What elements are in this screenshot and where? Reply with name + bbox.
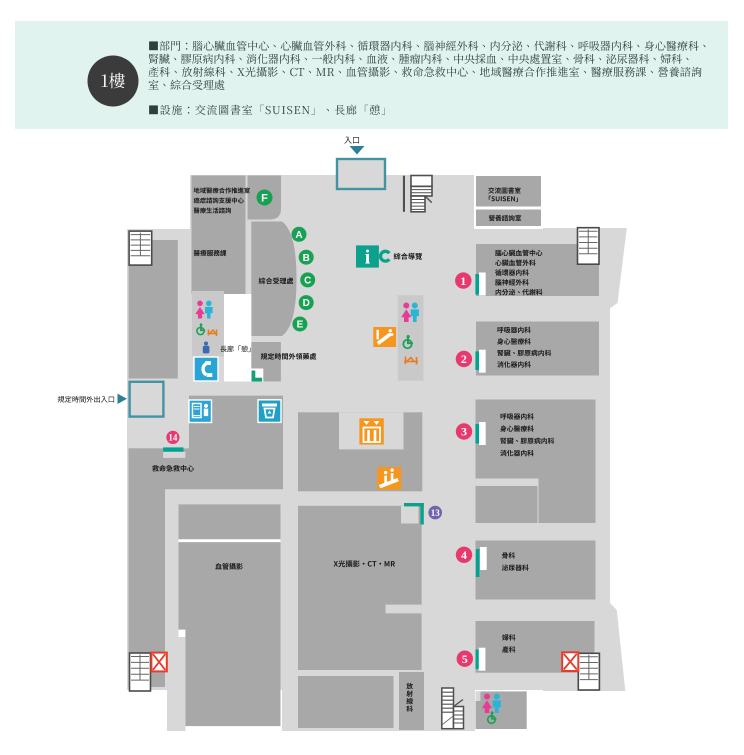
svg-text:4: 4 bbox=[461, 548, 467, 562]
svg-text:1: 1 bbox=[460, 274, 466, 288]
svg-text:F: F bbox=[261, 192, 268, 204]
svg-text:C: C bbox=[304, 276, 311, 287]
svg-text:2: 2 bbox=[461, 352, 467, 366]
svg-text:13: 13 bbox=[431, 508, 441, 518]
svg-text:D: D bbox=[303, 298, 310, 309]
svg-text:E: E bbox=[297, 320, 304, 331]
svg-text:B: B bbox=[303, 253, 310, 264]
svg-text:3: 3 bbox=[461, 425, 467, 439]
svg-text:A: A bbox=[295, 230, 302, 241]
svg-text:14: 14 bbox=[168, 433, 178, 443]
svg-text:5: 5 bbox=[462, 652, 468, 666]
svg-text:i: i bbox=[365, 247, 371, 269]
